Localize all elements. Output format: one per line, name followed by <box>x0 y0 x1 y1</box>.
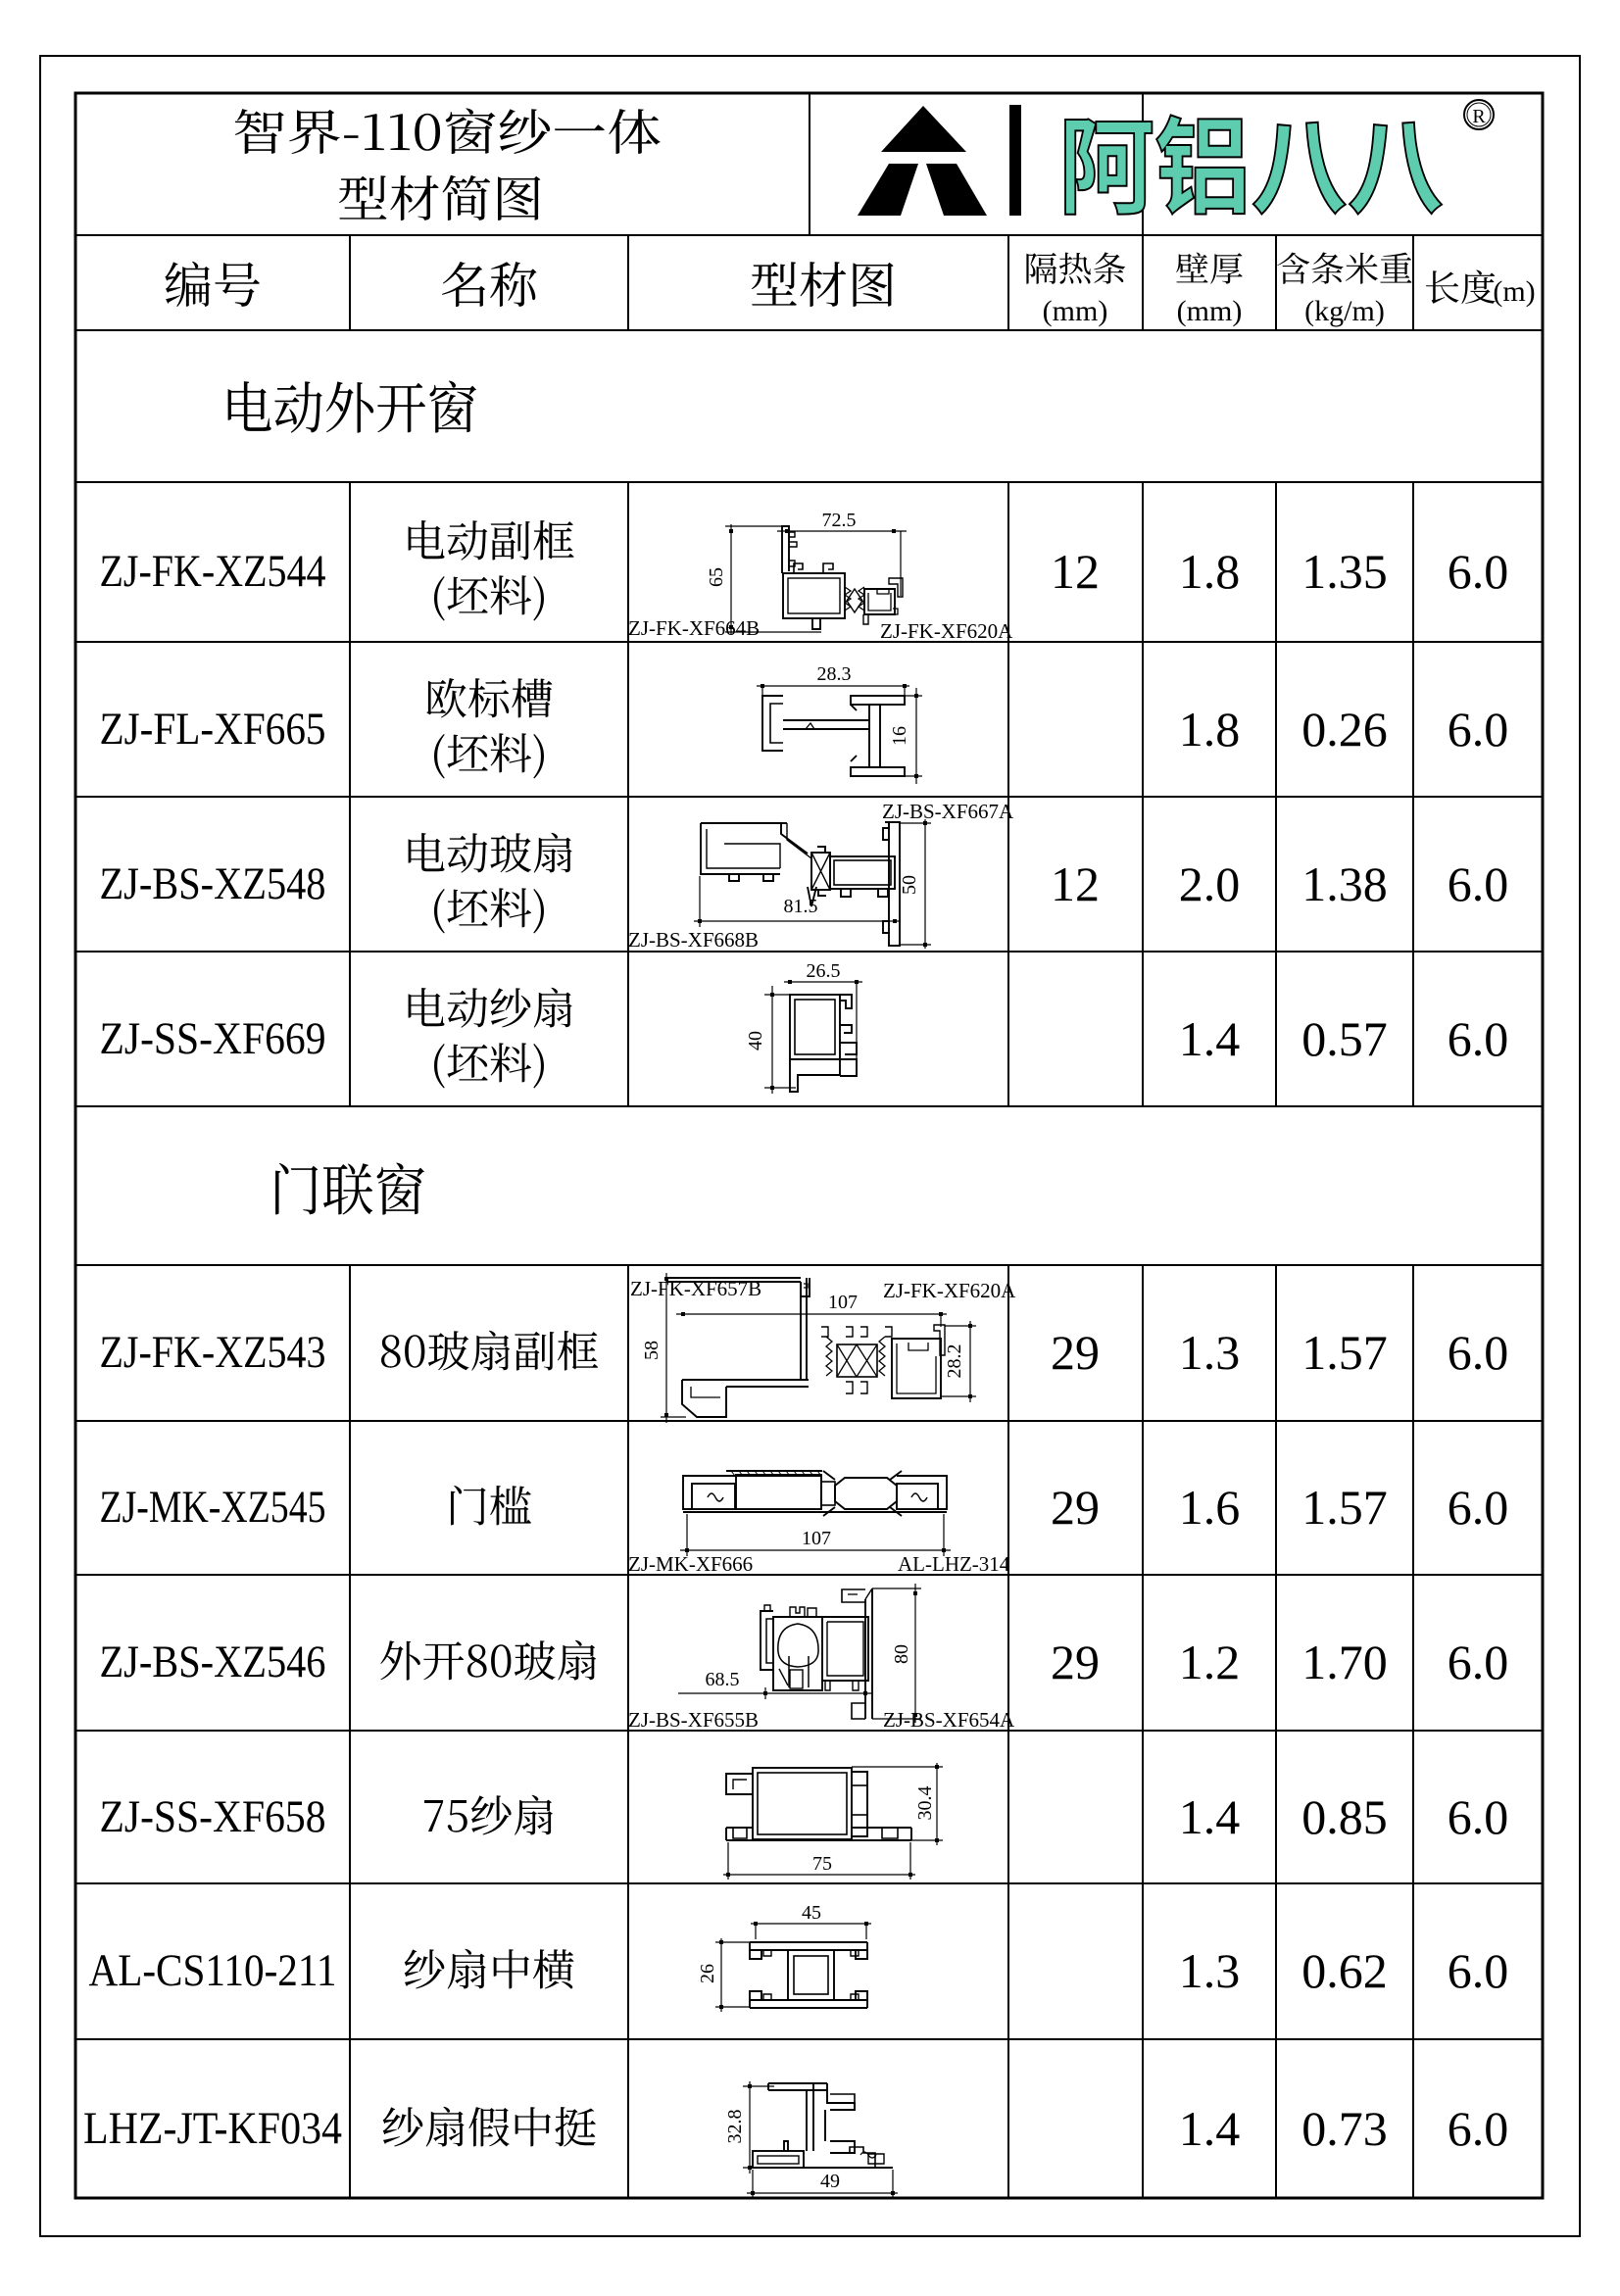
svg-text:ZJ-BS-XF667A: ZJ-BS-XF667A <box>882 800 1014 823</box>
svg-text:29: 29 <box>1051 1480 1100 1535</box>
svg-text:AL-LHZ-314: AL-LHZ-314 <box>898 1552 1010 1576</box>
svg-text:107: 107 <box>828 1292 858 1313</box>
svg-text:65: 65 <box>706 567 727 587</box>
svg-text:ZJ-MK-XZ545: ZJ-MK-XZ545 <box>100 1482 326 1533</box>
svg-text:6.0: 6.0 <box>1448 702 1509 757</box>
svg-text:0.62: 0.62 <box>1301 1943 1388 1998</box>
svg-text:R: R <box>1472 106 1486 127</box>
svg-text:1.4: 1.4 <box>1179 2101 1241 2156</box>
svg-text:1.57: 1.57 <box>1301 1325 1388 1380</box>
svg-text:1.4: 1.4 <box>1179 1789 1241 1844</box>
svg-text:28.2: 28.2 <box>944 1344 965 1379</box>
svg-text:ZJ-BS-XZ548: ZJ-BS-XZ548 <box>100 858 326 909</box>
svg-text:1.3: 1.3 <box>1179 1325 1241 1380</box>
svg-text:(mm): (mm) <box>1177 295 1243 327</box>
svg-text:0.73: 0.73 <box>1301 2101 1388 2156</box>
svg-text:(kg/m): (kg/m) <box>1304 295 1385 327</box>
svg-text:1.3: 1.3 <box>1179 1943 1241 1998</box>
svg-text:ZJ-FK-XZ544: ZJ-FK-XZ544 <box>100 546 326 597</box>
svg-text:0.85: 0.85 <box>1301 1789 1388 1844</box>
svg-text:50: 50 <box>899 875 920 895</box>
svg-text:1.35: 1.35 <box>1301 544 1388 599</box>
svg-text:LHZ-JT-KF034: LHZ-JT-KF034 <box>83 2103 342 2154</box>
svg-text:6.0: 6.0 <box>1448 856 1509 911</box>
svg-text:1.2: 1.2 <box>1179 1635 1241 1689</box>
svg-text:6.0: 6.0 <box>1448 1480 1509 1535</box>
svg-text:ZJ-BS-XZ546: ZJ-BS-XZ546 <box>100 1637 326 1687</box>
svg-text:6.0: 6.0 <box>1448 1943 1509 1998</box>
svg-text:1.57: 1.57 <box>1301 1480 1388 1535</box>
svg-text:0.57: 0.57 <box>1301 1011 1388 1066</box>
svg-text:ZJ-FL-XF665: ZJ-FL-XF665 <box>100 704 326 755</box>
svg-text:ZJ-FK-XF657B: ZJ-FK-XF657B <box>630 1277 761 1300</box>
svg-text:0.26: 0.26 <box>1301 702 1388 757</box>
svg-text:ZJ-MK-XF666: ZJ-MK-XF666 <box>628 1552 753 1576</box>
svg-text:26: 26 <box>697 1964 718 1983</box>
svg-text:40: 40 <box>745 1031 766 1050</box>
svg-text:72.5: 72.5 <box>822 510 857 531</box>
svg-text:12: 12 <box>1051 856 1100 911</box>
svg-text:AL-CS110-211: AL-CS110-211 <box>89 1945 337 1996</box>
svg-text:6.0: 6.0 <box>1448 2101 1509 2156</box>
svg-text:ZJ-BS-XF654A: ZJ-BS-XF654A <box>883 1708 1015 1732</box>
svg-text:16: 16 <box>889 726 910 746</box>
svg-text:49: 49 <box>820 2171 840 2192</box>
svg-text:68.5: 68.5 <box>706 1669 740 1690</box>
svg-text:ZJ-BS-XF655B: ZJ-BS-XF655B <box>628 1708 759 1732</box>
svg-text:107: 107 <box>802 1528 831 1549</box>
svg-text:28.3: 28.3 <box>817 663 852 685</box>
svg-text:1.70: 1.70 <box>1301 1635 1388 1689</box>
svg-text:ZJ-FK-XF620A: ZJ-FK-XF620A <box>883 1279 1016 1302</box>
svg-text:6.0: 6.0 <box>1448 1325 1509 1380</box>
svg-text:75: 75 <box>812 1853 832 1875</box>
svg-text:ZJ-FK-XZ543: ZJ-FK-XZ543 <box>100 1327 326 1378</box>
svg-text:6.0: 6.0 <box>1448 544 1509 599</box>
svg-text:6.0: 6.0 <box>1448 1011 1509 1066</box>
svg-text:(mm): (mm) <box>1043 295 1108 327</box>
svg-text:1.8: 1.8 <box>1179 544 1241 599</box>
svg-text:ZJ-SS-XF669: ZJ-SS-XF669 <box>100 1013 326 1064</box>
svg-text:1.8: 1.8 <box>1179 702 1241 757</box>
svg-text:6.0: 6.0 <box>1448 1789 1509 1844</box>
svg-text:2.0: 2.0 <box>1179 856 1241 911</box>
svg-text:ZJ-FK-XF664B: ZJ-FK-XF664B <box>628 616 760 640</box>
svg-text:32.8: 32.8 <box>724 2110 746 2144</box>
svg-text:ZJ-BS-XF668B: ZJ-BS-XF668B <box>628 928 759 952</box>
svg-text:45: 45 <box>802 1902 821 1924</box>
svg-text:80: 80 <box>891 1644 912 1664</box>
svg-text:12: 12 <box>1051 544 1100 599</box>
svg-text:29: 29 <box>1051 1635 1100 1689</box>
svg-text:1.38: 1.38 <box>1301 856 1388 911</box>
svg-text:26.5: 26.5 <box>807 960 841 982</box>
svg-text:29: 29 <box>1051 1325 1100 1380</box>
svg-text:ZJ-SS-XF658: ZJ-SS-XF658 <box>100 1791 326 1842</box>
svg-text:1.4: 1.4 <box>1179 1011 1241 1066</box>
svg-text:ZJ-FK-XF620A: ZJ-FK-XF620A <box>880 619 1013 643</box>
svg-text:30.4: 30.4 <box>914 1786 936 1821</box>
svg-text:(m): (m) <box>1493 275 1535 308</box>
svg-text:1.6: 1.6 <box>1179 1480 1241 1535</box>
svg-text:58: 58 <box>641 1341 663 1360</box>
svg-text:6.0: 6.0 <box>1448 1635 1509 1689</box>
svg-text:81.5: 81.5 <box>784 896 818 917</box>
